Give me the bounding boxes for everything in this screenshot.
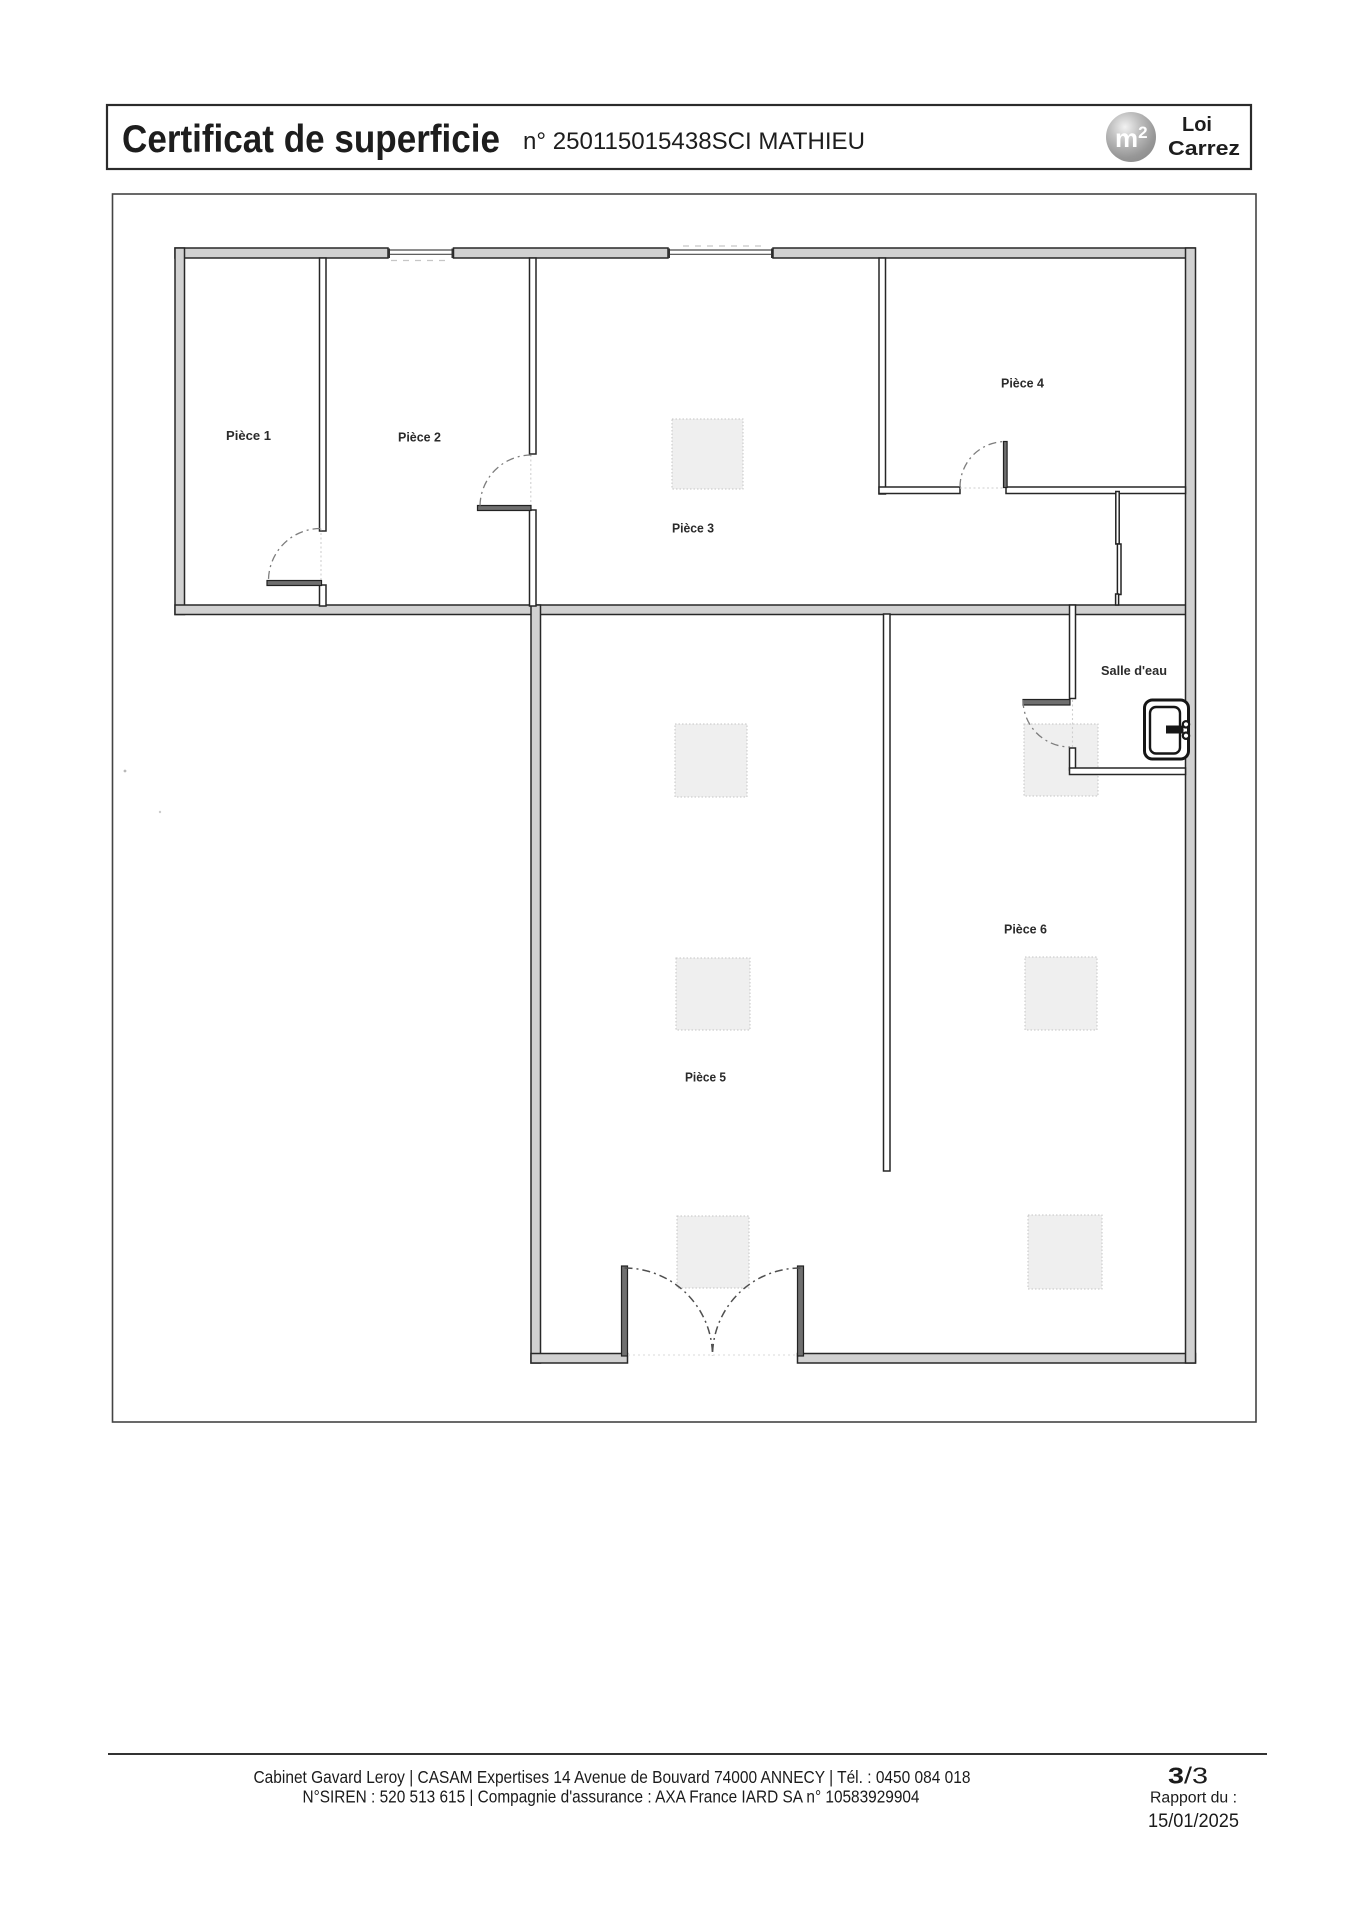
svg-text:15/01/2025: 15/01/2025	[1148, 1810, 1239, 1832]
svg-text:Carrez: Carrez	[1168, 138, 1240, 160]
svg-text:Pièce 1: Pièce 1	[226, 428, 271, 443]
svg-text:Pièce 2: Pièce 2	[398, 430, 441, 445]
svg-text:Pièce 5: Pièce 5	[685, 1070, 726, 1085]
svg-text:Rapport du :: Rapport du :	[1150, 1790, 1237, 1807]
svg-text:Pièce 6: Pièce 6	[1004, 922, 1047, 937]
svg-text:Salle d'eau: Salle d'eau	[1101, 663, 1167, 678]
svg-text:Loi: Loi	[1182, 114, 1212, 136]
svg-text:Pièce 4: Pièce 4	[1001, 376, 1045, 391]
svg-text:N°SIREN : 520 513 615 | Compag: N°SIREN : 520 513 615 | Compagnie d'assu…	[303, 1787, 920, 1807]
svg-text:3/3: 3/3	[1168, 1763, 1208, 1789]
svg-text:n° 250115015438SCI MATHIEU: n° 250115015438SCI MATHIEU	[523, 128, 865, 155]
svg-text:Certificat de superficie: Certificat de superficie	[122, 118, 500, 161]
svg-text:Pièce 3: Pièce 3	[672, 521, 714, 536]
svg-text:Cabinet Gavard Leroy | CASAM E: Cabinet Gavard Leroy | CASAM Expertises …	[254, 1767, 971, 1787]
